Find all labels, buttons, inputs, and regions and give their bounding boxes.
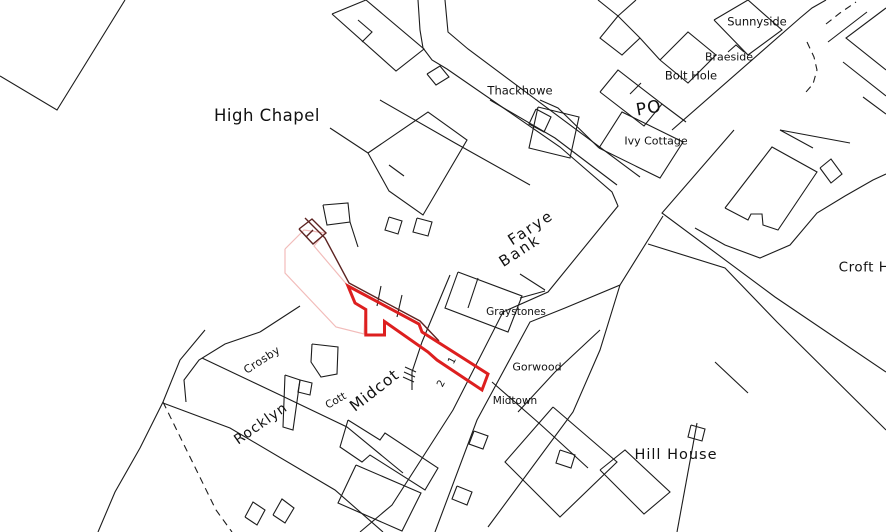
label-hill-house: Hill House	[634, 448, 717, 463]
parcel-line-11	[360, 0, 618, 532]
parcel-line-55	[405, 367, 416, 372]
parcel-line-47	[445, 272, 522, 332]
parcel-line-8	[298, 380, 312, 395]
parcel-line-36	[662, 104, 686, 122]
label-braeside: Braeside	[705, 52, 753, 63]
parcel-line-24	[863, 97, 886, 114]
dashed-boundary-2	[826, 2, 856, 24]
parcel-line-43	[330, 128, 368, 153]
parcel-line-44	[380, 100, 530, 185]
parcel-line-14	[662, 130, 886, 372]
label-high-chapel: High Chapel	[214, 108, 320, 125]
parcel-line-37	[529, 109, 551, 132]
label-croft-h: Croft H	[839, 261, 886, 275]
label-ivy-cottage: Ivy Cottage	[624, 136, 687, 147]
parcel-line-29	[598, 0, 660, 60]
parcel-line-5	[260, 306, 300, 332]
label-sunnyside: Sunnyside	[727, 16, 787, 28]
pink-edged-boundary	[285, 230, 365, 334]
label-bolt-hole: Bolt Hole	[665, 70, 717, 82]
parcel-line-56	[404, 372, 415, 377]
parcel-line-63	[338, 465, 421, 531]
red-property-boundary	[348, 286, 488, 390]
parcel-line-2	[202, 358, 403, 473]
parcel-line-0	[0, 0, 125, 110]
parcel-line-41	[368, 112, 467, 215]
parcel-line-18	[695, 174, 886, 258]
parcel-line-69	[715, 362, 748, 393]
label-gorwood: Gorwood	[512, 362, 561, 373]
parcel-line-60	[323, 203, 350, 225]
parcel-line-46	[529, 107, 579, 158]
dashed-boundary-0	[163, 402, 232, 532]
parcel-line-25	[780, 130, 850, 148]
map-canvas	[0, 0, 886, 532]
parcel-line-52	[468, 278, 478, 308]
dashed-boundary-1	[806, 42, 817, 92]
parcel-line-22	[843, 62, 886, 96]
parcel-line-19	[725, 147, 817, 230]
parcel-line-20	[820, 159, 842, 183]
parcel-line-30	[600, 16, 640, 55]
label-thackhowe: Thackhowe	[487, 85, 552, 97]
label-graystones: Graystones	[486, 307, 546, 318]
parcel-line-15	[435, 216, 663, 532]
label-po: PO	[635, 98, 663, 119]
parcel-line-33	[630, 83, 641, 94]
parcel-line-59	[413, 218, 432, 236]
parcel-line-58	[385, 217, 402, 234]
map-viewport: High ChapelThackhoweSunnysideBraesideBol…	[0, 0, 886, 532]
parcel-line-7	[283, 375, 300, 430]
parcel-line-31	[618, 0, 636, 16]
parcel-line-9	[245, 502, 265, 525]
parcel-line-70	[677, 423, 697, 532]
parcel-line-1	[98, 330, 205, 532]
parcel-line-10	[273, 499, 294, 523]
parcel-line-61	[350, 222, 358, 247]
label-midtown: Midtown	[493, 396, 537, 407]
parcel-line-66	[505, 407, 617, 517]
parcel-line-42	[389, 165, 404, 176]
parcel-line-38	[332, 0, 424, 71]
parcel-line-64	[452, 486, 472, 505]
parcel-line-6	[311, 344, 338, 377]
parcel-line-67	[556, 450, 575, 468]
parcel-line-21	[846, 8, 886, 70]
parcel-line-48	[520, 274, 545, 290]
